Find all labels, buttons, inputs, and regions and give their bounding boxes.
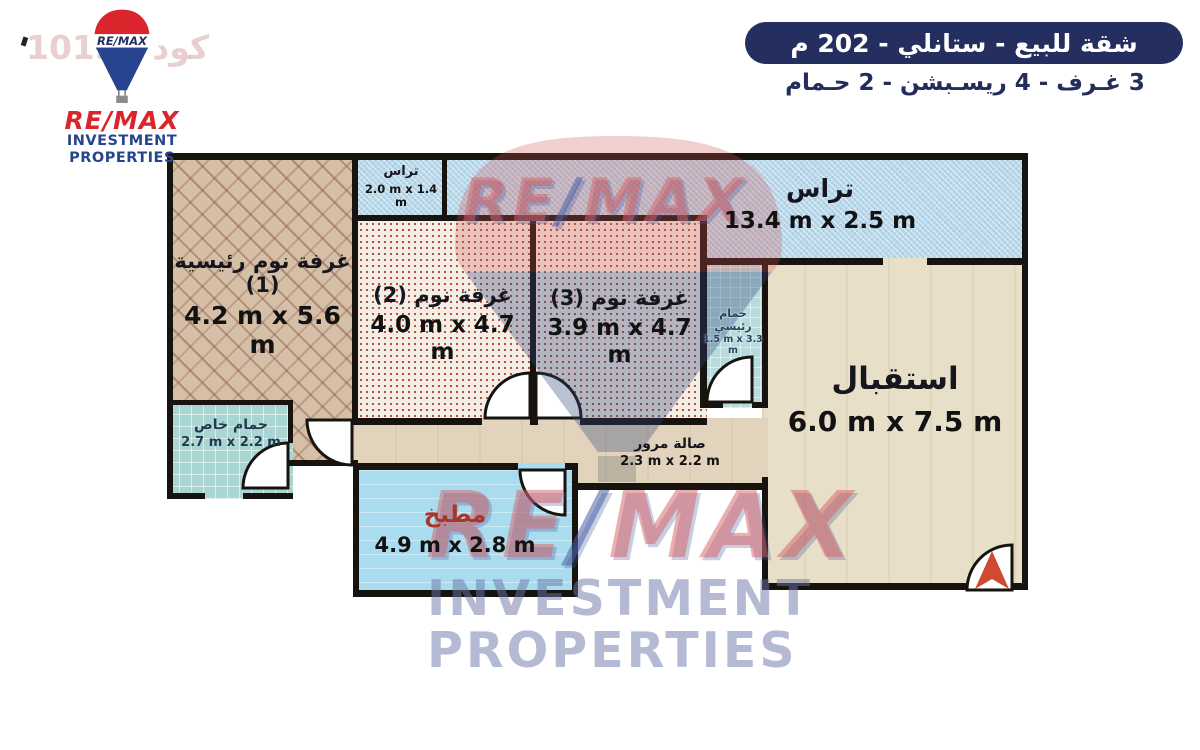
label-terrace-small: تراس 2.0 m x 1.4 m (358, 165, 444, 209)
balloon-text: RE/MAX (97, 34, 148, 48)
page-title: شقة للبيع - ستانلي - 202 م (790, 29, 1137, 58)
door-arc (536, 373, 581, 418)
label-private-bathroom: حمام خاص 2.7 m x 2.2 m (172, 417, 290, 451)
remax-logo: RE/MAX RE/MAX INVESTMENT PROPERTIES (60, 8, 184, 166)
door-arc (485, 373, 530, 418)
label-bedroom-3: غرفة نوم (3) 3.9 m x 4.7 m (537, 286, 702, 368)
label-main-bathroom: حمام رئيسي 1.5 m x 3.3 m (700, 308, 766, 357)
title-banner: شقة للبيع - ستانلي - 202 م (745, 22, 1183, 64)
label-bedroom-2: غرفة نوم (2) 4.0 m x 4.7 m (360, 283, 525, 365)
page-subtitle: 3 غـرف - 4 ريسـبشن - 2 حـمام (745, 70, 1185, 96)
label-hallway: صالة مرور 2.3 m x 2.2 m (600, 436, 740, 470)
logo-line3: PROPERTIES (60, 150, 184, 167)
label-terrace-main: تراس 13.4 m x 2.5 m (700, 175, 940, 234)
label-master-bedroom: غرفة نوم رئيسية (1) 4.2 m x 5.6 m (170, 249, 355, 360)
door-arc (307, 420, 352, 465)
door-arc (707, 357, 752, 402)
label-reception: استقبال 6.0 m x 7.5 m (775, 362, 1015, 438)
logo-line2: INVESTMENT (60, 133, 184, 150)
label-kitchen: مطبخ 4.9 m x 2.8 m (365, 502, 545, 558)
flyer-page: كود 10158 RE/MAX RE/MAX INVESTMENT PROPE… (0, 0, 1200, 750)
logo-name: RE/MAX (60, 108, 184, 133)
remax-balloon-icon: RE/MAX (86, 8, 158, 104)
